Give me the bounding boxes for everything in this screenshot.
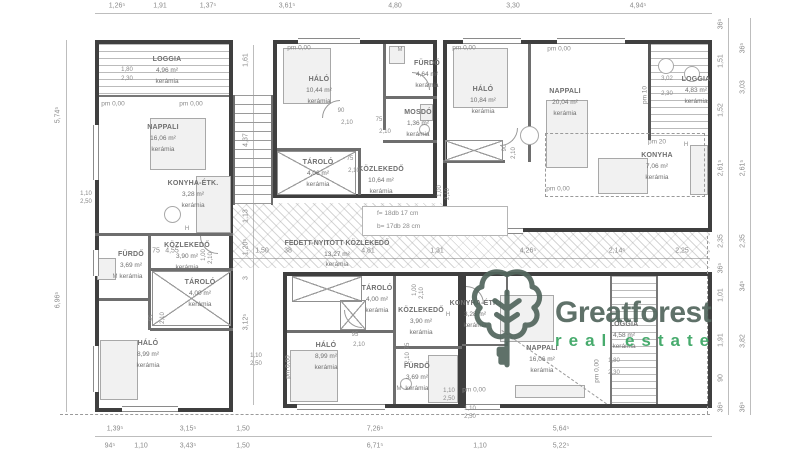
dim-label: 94⁵ <box>105 443 116 450</box>
dim-label: 2,10 <box>353 342 365 348</box>
dim-label: 1,31 <box>430 248 444 255</box>
dim-label: 1,80 <box>121 67 133 73</box>
dim-label: 2,35 <box>740 234 747 248</box>
dim-label: 38 <box>284 248 292 255</box>
room-area: 8,99 m² <box>314 351 337 362</box>
wall <box>99 298 149 301</box>
dim-label: 3 <box>243 276 250 280</box>
dim-label: 7,26⁵ <box>367 426 384 433</box>
dim-label: 2,10 <box>379 129 391 135</box>
room-finish: kerámia <box>168 200 219 211</box>
dim-label: pm 0,00 <box>546 186 570 193</box>
dim-label: M <box>398 47 403 53</box>
room-label: NAPPALI20,04 m²kerámia <box>549 86 581 119</box>
dim-label: pm 20 <box>648 139 666 146</box>
window <box>93 346 99 392</box>
room-finish: kerámia <box>549 108 581 119</box>
dim-label: 1,00 <box>201 249 207 261</box>
dim-label: 95 <box>352 332 359 338</box>
stair-note-line1: f= 18db 17 cm <box>377 207 507 220</box>
dim-line-right-outer <box>750 18 751 415</box>
room-name: HÁLÓ <box>470 84 496 95</box>
window <box>463 38 521 44</box>
dim-label: 3,82 <box>740 334 747 348</box>
dim-label: 2,30 <box>608 370 620 376</box>
stairs <box>233 95 273 205</box>
room-label: FÜRDŐ3,69 m²kerámia <box>118 249 144 282</box>
room-area: 4,06 m² <box>303 168 334 179</box>
room-area: 10,64 m² <box>358 175 404 186</box>
room-name: MOSDÓ <box>404 107 431 118</box>
dim-label: M <box>397 386 402 392</box>
dim-label: pm 10 <box>642 86 649 104</box>
room-label: TÁROLÓ4,00 m²kerámia <box>185 277 216 310</box>
dim-label: 90 <box>718 374 725 382</box>
dim-label: 3,43⁵ <box>180 443 197 450</box>
dim-line-right-inner <box>728 18 729 415</box>
dim-label: 4,94⁵ <box>630 3 647 10</box>
dim-label: 1,50 <box>255 248 269 255</box>
dim-label: 4,80 <box>388 3 402 10</box>
dim-label: 2,25 <box>675 248 689 255</box>
window <box>297 404 385 410</box>
room-area: 1,36 m² <box>404 118 431 129</box>
dim-line-left <box>66 40 67 412</box>
room-area: 4,96 m² <box>153 65 182 76</box>
room-label: LOGGIA4,83 m²kerámia <box>682 74 711 107</box>
room-finish: kerámia <box>164 262 210 273</box>
chair <box>658 58 674 74</box>
dim-label: 75 <box>405 343 411 350</box>
property-line <box>60 414 710 415</box>
room-label: KÖZLEKEDŐ10,64 m²kerámia <box>358 164 404 197</box>
dim-label: 4,26⁵ <box>520 248 537 255</box>
room-label: HÁLÓ8,99 m²kerámia <box>314 340 337 373</box>
room-label: LOGGIA4,96 m²kerámia <box>153 54 182 87</box>
room-label: KONYHA-ÉTK.3,28 m²kerámia <box>168 178 219 211</box>
dim-label: pm 0,00 <box>285 355 292 379</box>
tree-key-icon <box>463 266 551 370</box>
bench <box>515 385 585 398</box>
room-area: 3,90 m² <box>398 316 444 327</box>
dim-label: 2,10 <box>419 287 425 299</box>
dim-label: 1,50 <box>236 443 250 450</box>
room-name: KÖZLEKEDŐ <box>398 305 444 316</box>
dim-label: 5,22⁵ <box>553 443 570 450</box>
dim-label: 6,96⁵ <box>55 292 62 309</box>
dim-label: 1,50 <box>236 426 250 433</box>
room-area: 3,69 m² <box>404 372 430 383</box>
dim-label: 2,10 <box>208 252 214 264</box>
dim-label: 1,10 <box>473 443 487 450</box>
room-area: 3,69 m² <box>118 260 144 271</box>
room-label: MOSDÓ1,36 m²kerámia <box>404 107 431 140</box>
dim-label: 3,15⁵ <box>180 426 197 433</box>
logo-text: Greatforest real estate <box>555 298 716 351</box>
dim-label: 1,91 <box>153 3 167 10</box>
dim-label: H <box>446 312 450 318</box>
room-area: 8,99 m² <box>136 349 159 360</box>
dim-label: 2,61⁵ <box>740 160 747 177</box>
room-finish: kerámia <box>185 299 216 310</box>
dim-label: H <box>684 142 688 148</box>
dim-label: 2,30 <box>661 91 673 97</box>
wall <box>393 276 396 404</box>
dim-label: 2,30 <box>121 76 133 82</box>
room-area: 4,00 m² <box>185 288 216 299</box>
dim-label: 1,39⁵ <box>107 426 124 433</box>
logo-tagline: real estate <box>555 331 716 351</box>
logo-name: Greatforest <box>555 298 716 328</box>
room-finish: kerámia <box>118 271 144 282</box>
room-label: HÁLÓ10,84 m²kerámia <box>470 84 496 117</box>
dim-label: 1,01 <box>718 288 725 302</box>
dim-label: 1,51 <box>718 54 725 68</box>
room-name: LOGGIA <box>153 54 182 65</box>
dim-label: 36⁵ <box>718 19 725 30</box>
room-name: LOGGIA <box>682 74 711 85</box>
dim-label: 2,50 <box>443 396 455 402</box>
dim-label: H <box>185 226 189 232</box>
wall <box>383 96 437 99</box>
dim-label: 1,00 <box>437 185 443 197</box>
dim-label: 3,03 <box>740 80 747 94</box>
storage-brace <box>292 276 362 302</box>
dim-label: 4,55 <box>165 248 179 255</box>
dim-label: 2,10 <box>341 120 353 126</box>
room-name: TÁROLÓ <box>362 283 393 294</box>
room-finish: kerámia <box>398 327 444 338</box>
window <box>298 38 360 44</box>
dim-label: 2,35 <box>718 234 725 248</box>
room-finish: kerámia <box>404 383 430 394</box>
room-area: 10,84 m² <box>470 95 496 106</box>
dim-label: 2,10 <box>405 352 411 364</box>
room-finish: kerámia <box>306 96 332 107</box>
dim-label: 36⁵ <box>718 263 725 274</box>
dim-label: pm 0,00 <box>287 45 311 52</box>
room-area: 4,83 m² <box>682 85 711 96</box>
room-finish: kerámia <box>470 106 496 117</box>
room-area: 4,64 m² <box>414 69 440 80</box>
room-name: HÁLÓ <box>306 74 332 85</box>
dim-label: 34⁵ <box>740 281 747 292</box>
dim-label: pm 0,00 <box>179 101 203 108</box>
dim-label: 90 <box>502 145 508 152</box>
dim-label: 2,10 <box>511 147 517 159</box>
dim-label: 4,37 <box>243 133 250 147</box>
room-label: KÖZLEKEDŐ3,90 m²kerámia <box>398 305 444 338</box>
room-area: 20,04 m² <box>549 97 581 108</box>
room-label: TÁROLÓ4,00 m²kerámia <box>362 283 393 316</box>
dim-label: 1,91 <box>718 333 725 347</box>
dim-label: 5,74⁵ <box>55 107 62 124</box>
dim-label: 2,10 <box>445 188 451 200</box>
room-finish: kerámia <box>404 129 431 140</box>
dim-label: 1,13 <box>243 209 250 223</box>
room-name: FÜRDŐ <box>118 249 144 260</box>
room-area: 3,28 m² <box>168 189 219 200</box>
dim-label: 3,30 <box>506 3 520 10</box>
walkway-finish: kerámia <box>285 260 390 271</box>
dim-label: 1,10 <box>443 388 455 394</box>
room-name: HÁLÓ <box>136 338 159 349</box>
dim-label: 2,10 <box>348 168 360 174</box>
room-name: TÁROLÓ <box>185 277 216 288</box>
dim-label: 2,50 <box>80 199 92 205</box>
walkway-label: FEDETT-NYITOTT KÖZLEKEDŐ 13,27 m² kerámi… <box>285 239 390 271</box>
dim-label: 3,61⁵ <box>279 3 296 10</box>
dim-label: 5,64⁵ <box>553 426 570 433</box>
room-label: FÜRDŐ3,69 m²kerámia <box>404 361 430 394</box>
room-finish: kerámia <box>314 362 337 373</box>
room-finish: kerámia <box>414 80 440 91</box>
room-finish: kerámia <box>303 179 334 190</box>
storage-brace <box>445 140 503 161</box>
dim-label: 75 <box>152 248 160 255</box>
room-finish: kerámia <box>136 360 159 371</box>
dim-label: 1,52 <box>718 103 725 117</box>
dim-label: 1,00 <box>412 284 418 296</box>
dim-label: 1,61 <box>243 53 250 67</box>
room-name: TÁROLÓ <box>303 157 334 168</box>
dim-label: 6,71⁵ <box>367 443 384 450</box>
room-label: HÁLÓ10,44 m²kerámia <box>306 74 332 107</box>
agency-watermark: Greatforest real estate <box>463 266 716 370</box>
dim-label: 95 <box>149 315 155 322</box>
dim-label: 2,61⁵ <box>718 160 725 177</box>
wall <box>393 346 462 349</box>
dim-label: 1,10 <box>80 191 92 197</box>
dim-label: 36⁵ <box>740 43 747 54</box>
dim-label: 75 <box>347 156 354 162</box>
dim-label: 2,10 <box>160 312 166 324</box>
room-label: HÁLÓ8,99 m²kerámia <box>136 338 159 371</box>
wall <box>150 328 233 331</box>
dim-line-bottom <box>95 436 712 437</box>
window <box>122 406 178 412</box>
dim-label: pm 0,00 <box>547 46 571 53</box>
room-finish: kerámia <box>682 96 711 107</box>
room-finish: kerámia <box>358 186 404 197</box>
floor-plan: f= 18db 17 cm b= 17db 28 cm FEDETT-NYITO… <box>0 0 800 450</box>
room-area: 16,06 m² <box>147 133 179 144</box>
room-finish: kerámia <box>641 172 673 183</box>
armchair <box>520 126 539 145</box>
room-name: KÖZLEKEDŐ <box>358 164 404 175</box>
dim-label: 1,10 <box>464 406 476 412</box>
room-finish: kerámia <box>147 144 179 155</box>
room-name: FÜRDŐ <box>414 58 440 69</box>
wall <box>287 330 395 333</box>
dim-label: 1,20⁵ <box>243 239 250 256</box>
room-label: FÜRDŐ4,64 m²kerámia <box>414 58 440 91</box>
dim-label: 1,10 <box>250 353 262 359</box>
room-name: NAPPALI <box>147 122 179 133</box>
dim-label: 75 <box>376 117 383 123</box>
room-finish: kerámia <box>153 76 182 87</box>
window <box>93 125 99 180</box>
dim-label: 3,12⁵ <box>243 314 250 331</box>
dim-label: 1,10 <box>134 443 148 450</box>
window <box>93 250 99 276</box>
dim-label: 90 <box>338 108 345 114</box>
wall <box>383 44 386 130</box>
dim-label: 1,26⁵ <box>109 3 126 10</box>
room-label: KONYHA7,06 m²kerámia <box>641 150 673 183</box>
dim-label: 2,14⁵ <box>609 248 626 255</box>
room-label: TÁROLÓ4,06 m²kerámia <box>303 157 334 190</box>
room-name: KONYHA <box>641 150 673 161</box>
room-name: NAPPALI <box>549 86 581 97</box>
room-area: 7,06 m² <box>641 161 673 172</box>
room-area: 10,44 m² <box>306 85 332 96</box>
bed <box>100 340 138 400</box>
room-finish: kerámia <box>362 305 393 316</box>
dim-label: 4,81 <box>361 248 375 255</box>
stair-note: f= 18db 17 cm b= 17db 28 cm <box>362 206 508 236</box>
dim-label: 36⁵ <box>740 402 747 413</box>
dim-label: 3,02 <box>661 76 673 82</box>
room-name: KONYHA-ÉTK. <box>168 178 219 189</box>
room-area: 4,00 m² <box>362 294 393 305</box>
wall <box>383 140 437 143</box>
dim-line-top <box>95 13 712 14</box>
dim-label: pm 0,00 <box>462 387 486 394</box>
dim-label: pm 0,00 <box>452 45 476 52</box>
dim-label: 1,37⁵ <box>200 3 217 10</box>
room-label: NAPPALI16,06 m²kerámia <box>147 122 179 155</box>
dim-label: 36⁵ <box>718 402 725 413</box>
dim-label: pm 0,00 <box>101 101 125 108</box>
dim-label: M <box>113 274 118 280</box>
room-name: HÁLÓ <box>314 340 337 351</box>
window <box>557 38 625 44</box>
dim-label: 2,50 <box>464 414 476 420</box>
dim-label: 2,50 <box>250 361 262 367</box>
stair-note-line2: b= 17db 28 cm <box>377 220 507 233</box>
